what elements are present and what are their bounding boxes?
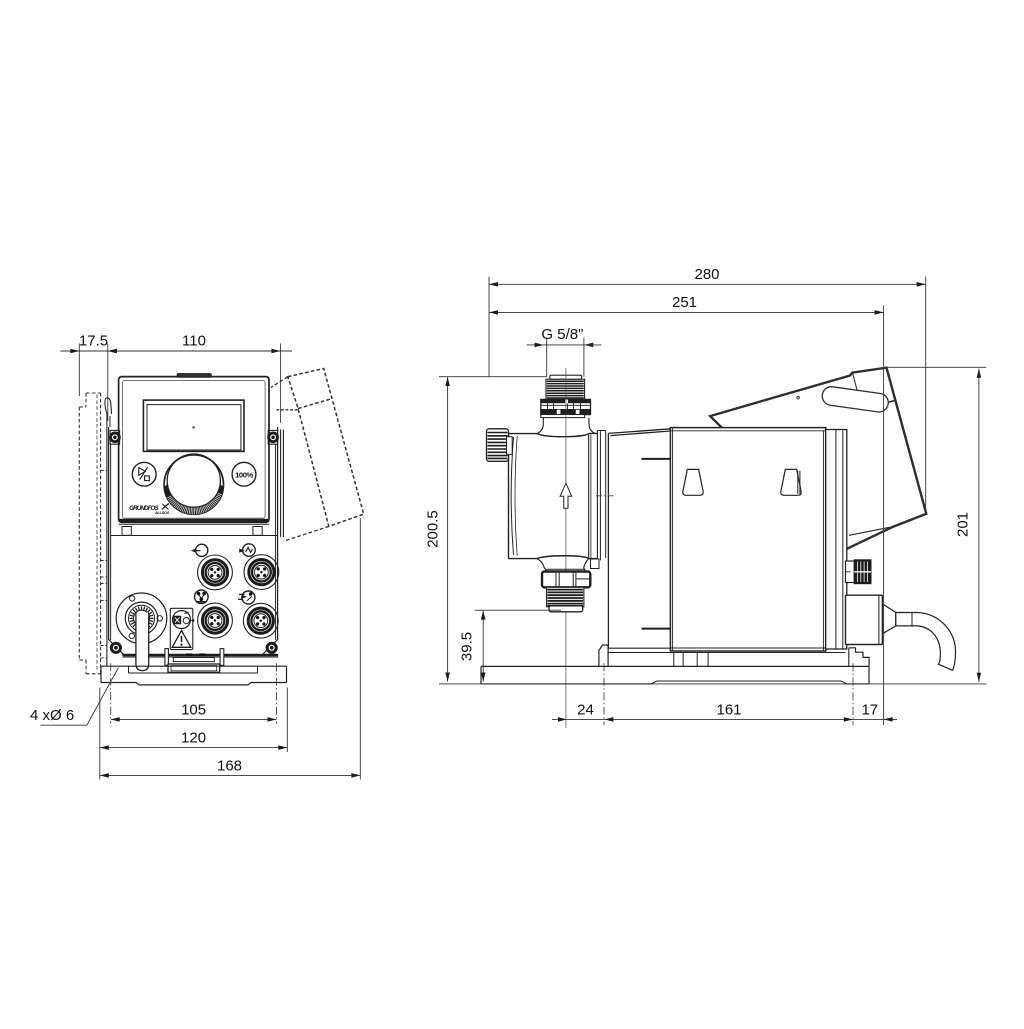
svg-text:110: 110	[182, 333, 206, 350]
svg-text:24: 24	[577, 701, 594, 718]
svg-text:4 xØ 6: 4 xØ 6	[30, 707, 74, 724]
svg-text:280: 280	[694, 266, 719, 283]
svg-text:200.5: 200.5	[425, 510, 442, 548]
svg-text:17.5: 17.5	[79, 333, 108, 350]
svg-text:39.5: 39.5	[459, 632, 476, 661]
svg-text:ALLDOS: ALLDOS	[154, 511, 170, 515]
svg-text:G 5/8": G 5/8"	[541, 326, 583, 343]
svg-text:105: 105	[181, 701, 206, 718]
svg-text:17: 17	[861, 701, 878, 718]
svg-text:120: 120	[181, 730, 206, 747]
svg-text:168: 168	[217, 757, 242, 774]
svg-text:161: 161	[716, 701, 741, 718]
svg-text:251: 251	[672, 294, 697, 311]
svg-text:201: 201	[955, 512, 972, 537]
svg-text:100%: 100%	[235, 470, 253, 479]
